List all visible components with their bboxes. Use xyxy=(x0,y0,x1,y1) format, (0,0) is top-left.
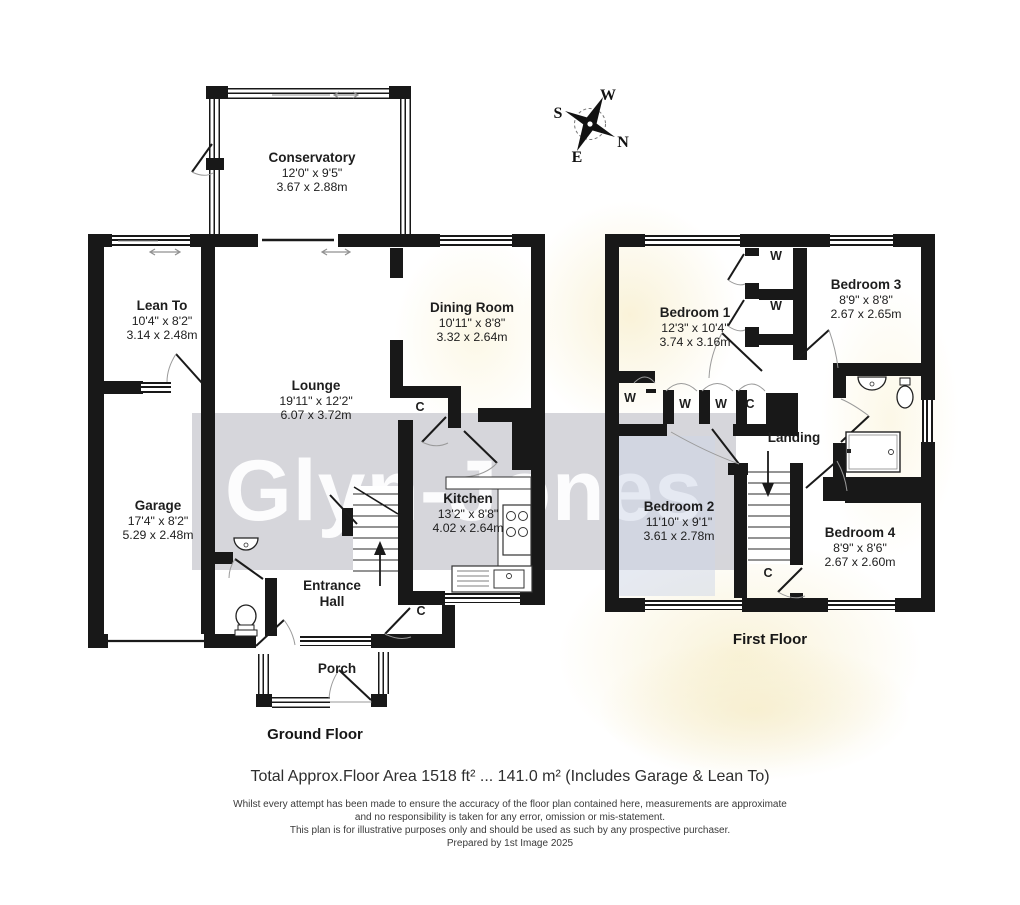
porch-post xyxy=(256,694,272,707)
wall xyxy=(265,578,277,636)
wall xyxy=(342,508,354,536)
window xyxy=(830,235,893,246)
wall xyxy=(833,363,935,376)
wall xyxy=(605,598,645,612)
room-label-conservatory: Conservatory 12'0" x 9'5" 3.67 x 2.88m xyxy=(252,150,372,195)
total-area-summary: Total Approx.Floor Area 1518 ft² ... 141… xyxy=(0,768,1020,786)
ground-floor-title: Ground Floor xyxy=(235,726,395,743)
wall xyxy=(845,490,935,503)
window xyxy=(300,636,371,646)
wall xyxy=(742,598,828,612)
wardrobe-label: W xyxy=(713,397,729,411)
window xyxy=(445,593,520,603)
room-label-landing: Landing xyxy=(754,430,834,446)
window xyxy=(922,400,933,442)
room-label-porch: Porch xyxy=(297,661,377,677)
cupboard-label: C xyxy=(742,397,758,411)
room-label-lounge: Lounge 19'11" x 12'2" 6.07 x 3.72m xyxy=(256,378,376,423)
wall xyxy=(531,470,545,605)
window xyxy=(645,235,740,246)
wall xyxy=(88,381,143,394)
wall xyxy=(338,234,440,247)
glass-wall xyxy=(378,652,389,694)
wall xyxy=(833,477,935,490)
cupboard-label: C xyxy=(760,566,776,580)
wall xyxy=(605,234,619,612)
porch-post xyxy=(371,694,387,707)
room-label-bedroom3: Bedroom 3 8'9" x 8'8" 2.67 x 2.65m xyxy=(806,277,926,322)
wall xyxy=(745,248,759,256)
wall xyxy=(390,386,461,398)
footer: Total Approx.Floor Area 1518 ft² ... 141… xyxy=(0,768,1020,850)
disclaimer-line: This plan is for illustrative purposes o… xyxy=(0,824,1020,837)
wall xyxy=(740,234,830,247)
wall xyxy=(398,591,445,605)
wall xyxy=(605,371,655,383)
window xyxy=(141,382,171,393)
wall xyxy=(793,248,807,360)
room-label-bedroom2: Bedroom 2 11'10" x 9'1" 3.61 x 2.78m xyxy=(619,499,739,544)
wardrobe-label: W xyxy=(677,397,693,411)
wall xyxy=(88,634,108,648)
room-label-entrance-hall: Entrance Hall xyxy=(292,578,372,610)
room-label-lean-to: Lean To 10'4" x 8'2" 3.14 x 2.48m xyxy=(102,298,222,343)
glass-wall xyxy=(400,99,411,234)
window xyxy=(112,235,190,246)
room-label-kitchen: Kitchen 13'2" x 8'8" 4.02 x 2.64m xyxy=(408,491,528,536)
conservatory-post xyxy=(206,86,228,99)
floorplan-page: Glyn-Jones xyxy=(0,0,1020,905)
cupboard-label: C xyxy=(412,400,428,414)
wall xyxy=(745,283,759,299)
wall xyxy=(921,442,935,612)
glass-wall xyxy=(228,88,389,99)
glass-wall xyxy=(258,654,269,694)
window xyxy=(440,235,512,246)
first-floor-title: First Floor xyxy=(690,631,850,648)
room-label-bedroom1: Bedroom 1 12'3" x 10'4" 3.74 x 3.16m xyxy=(635,305,755,350)
wardrobe-label: W xyxy=(622,391,638,405)
wall xyxy=(215,634,256,648)
glass-wall xyxy=(209,170,220,234)
room-label-dining-room: Dining Room 10'11" x 8'8" 3.32 x 2.64m xyxy=(407,300,537,345)
wall xyxy=(520,591,545,605)
disclaimer-line: and no responsibility is taken for any e… xyxy=(0,811,1020,824)
window xyxy=(828,600,895,610)
wall xyxy=(88,234,104,648)
wall xyxy=(215,552,233,564)
window xyxy=(645,600,742,610)
conservatory-post xyxy=(206,158,224,170)
wall xyxy=(699,390,710,424)
disclaimer-line: Whilst every attempt has been made to en… xyxy=(0,798,1020,811)
wall xyxy=(390,248,403,278)
glass-wall xyxy=(209,99,220,158)
glass-wall xyxy=(272,697,330,708)
wall xyxy=(790,593,803,612)
room-label-garage: Garage 17'4" x 8'2" 5.29 x 2.48m xyxy=(98,498,218,543)
cupboard-label: C xyxy=(413,604,429,618)
wall xyxy=(201,234,215,634)
wardrobe-label: W xyxy=(768,249,784,263)
wall xyxy=(823,477,845,501)
wall xyxy=(833,363,846,398)
wall xyxy=(442,605,455,638)
door-handle-mark xyxy=(646,389,656,393)
wall xyxy=(605,424,667,436)
wall xyxy=(663,390,674,424)
wardrobe-label: W xyxy=(768,299,784,313)
room-label-bedroom4: Bedroom 4 8'9" x 8'6" 2.67 x 2.60m xyxy=(800,525,920,570)
chimney-breast xyxy=(766,393,798,424)
conservatory-post xyxy=(389,86,411,99)
wall xyxy=(448,398,461,428)
disclaimer-line: Prepared by 1st Image 2025 xyxy=(0,837,1020,850)
